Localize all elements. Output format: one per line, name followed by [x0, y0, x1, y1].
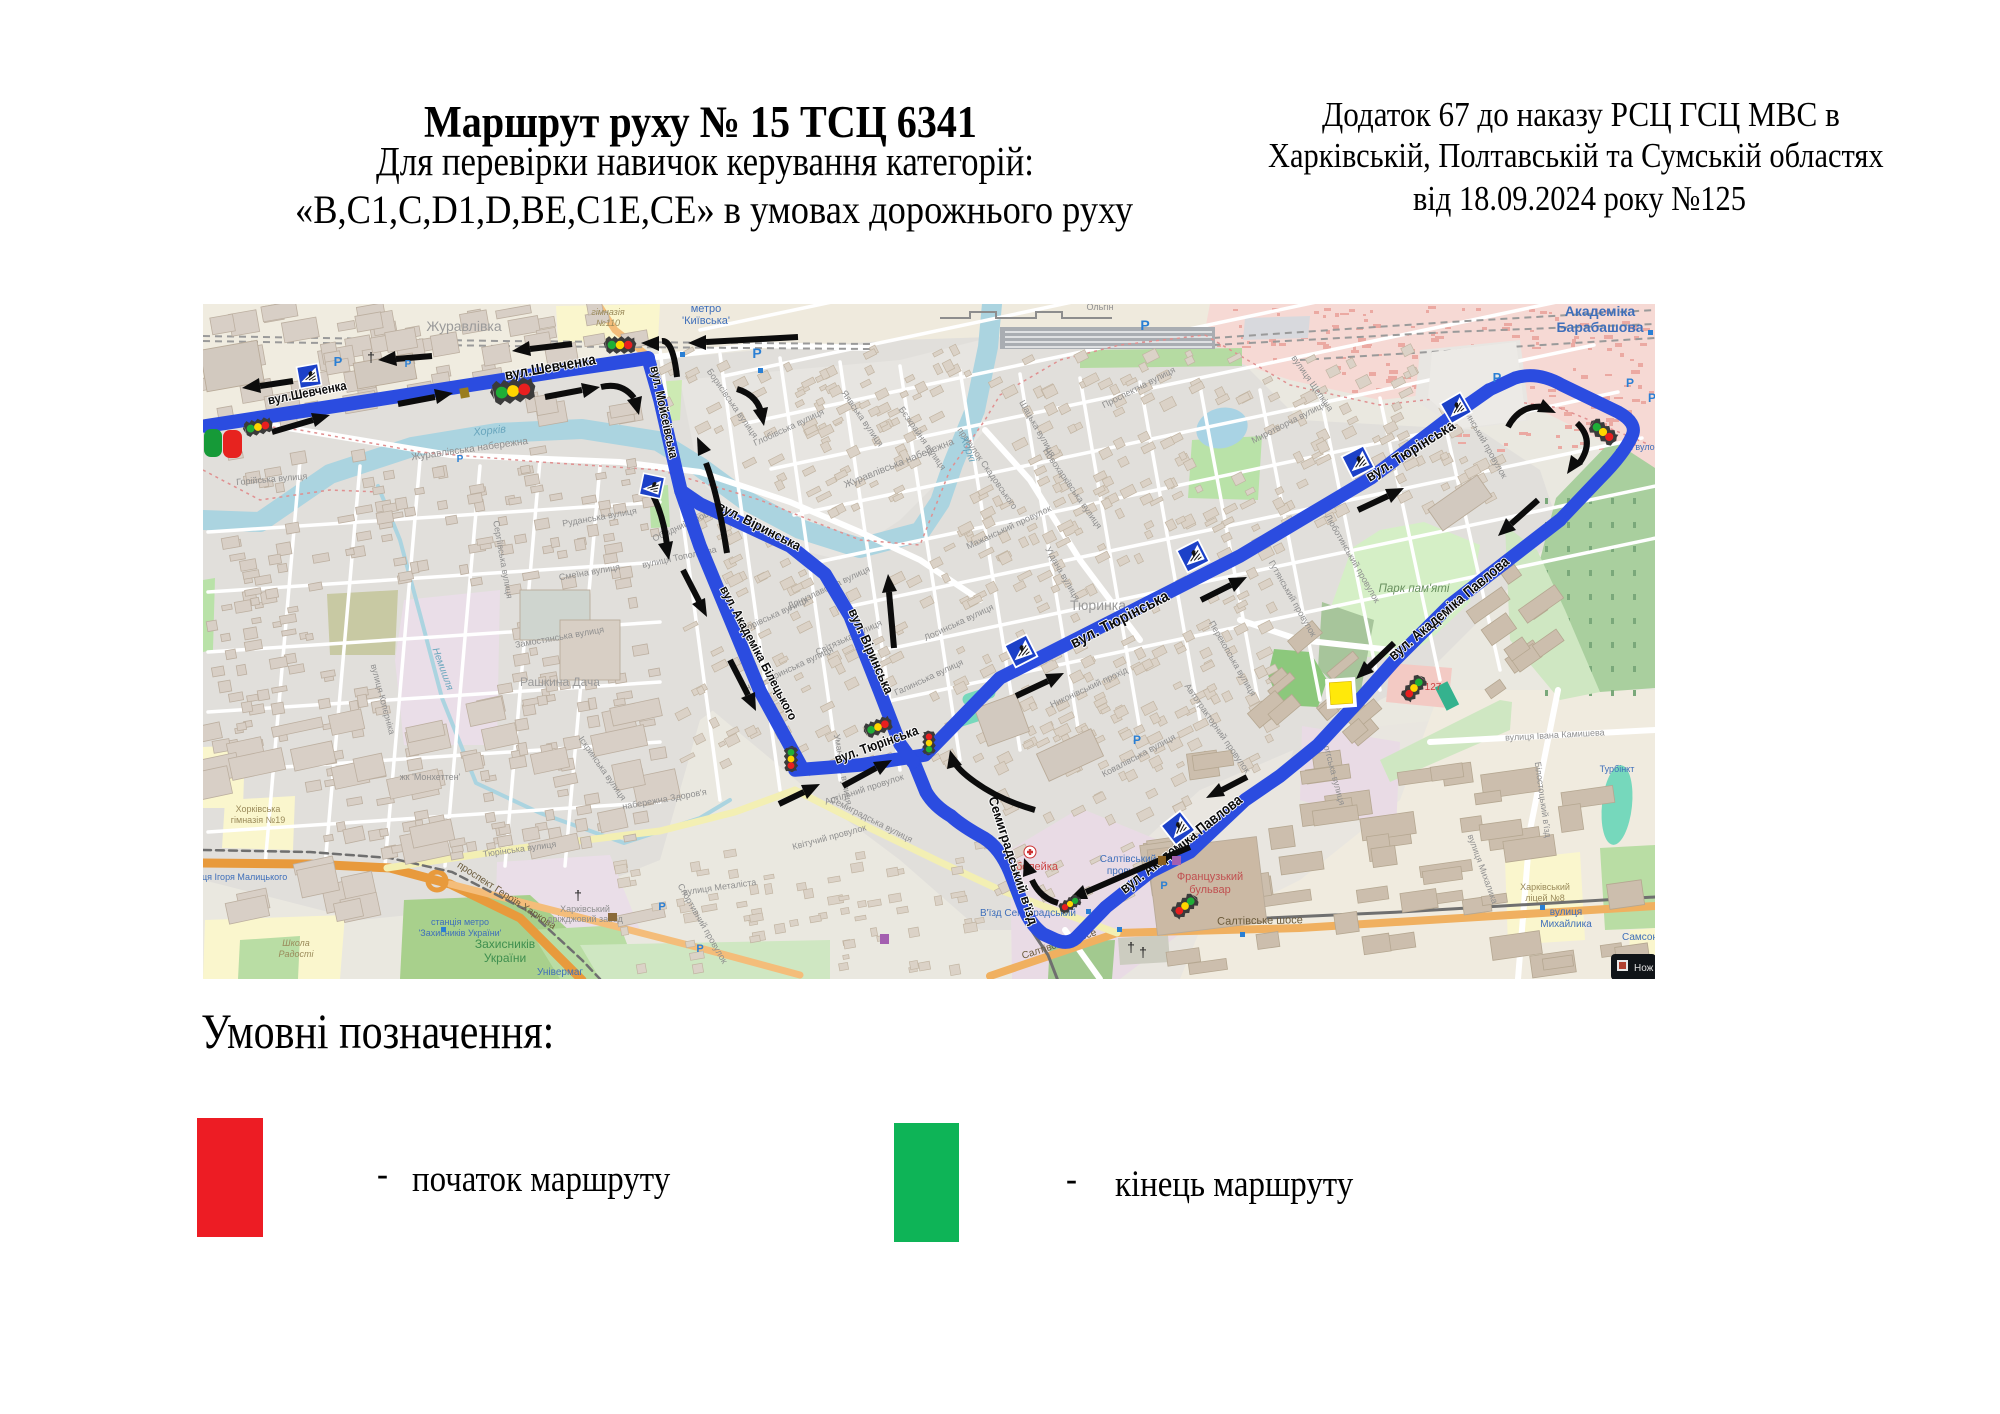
svg-text:Салтівське шосе: Салтівське шосе [1217, 914, 1303, 927]
svg-text:†: † [1139, 944, 1147, 960]
svg-text:гімназія: гімназія [591, 307, 625, 317]
svg-text:Самсон: Самсон [1622, 932, 1655, 943]
svg-text:Журавлівка: Журавлівка [426, 318, 501, 334]
svg-text:Нож: Нож [1634, 963, 1654, 974]
svg-text:Барабашова: Барабашова [1556, 319, 1643, 335]
svg-text:†: † [574, 887, 582, 903]
svg-text:Універмаг: Універмаг [537, 967, 583, 978]
svg-text:P: P [405, 359, 412, 370]
svg-text:вулиця: вулиця [1550, 907, 1582, 918]
svg-text:P: P [1493, 370, 1502, 385]
svg-text:P: P [752, 345, 761, 361]
svg-text:№110: №110 [596, 318, 620, 328]
svg-text:Хорківська: Хорківська [236, 804, 281, 814]
svg-text:Школа: Школа [282, 938, 309, 948]
svg-text:Харківський: Харківський [1520, 882, 1570, 892]
svg-text:P: P [334, 354, 343, 369]
svg-text:P: P [1648, 391, 1655, 405]
svg-text:жк 'Монхеттен': жк 'Монхеттен' [400, 772, 461, 782]
svg-text:ліцей №8: ліцей №8 [1525, 893, 1565, 903]
svg-text:'Київська': 'Київська' [682, 315, 730, 327]
svg-text:метро: метро [691, 304, 722, 315]
svg-text:Академіка: Академіка [1565, 304, 1636, 319]
svg-text:Рашкина Дача: Рашкина Дача [520, 675, 600, 689]
svg-text:Захисників: Захисників [475, 937, 535, 951]
svg-text:P: P [457, 454, 464, 465]
svg-text:станція метро: станція метро [431, 917, 489, 927]
svg-text:†: † [367, 349, 375, 365]
svg-text:Радості: Радості [279, 949, 315, 959]
svg-text:P: P [1133, 733, 1141, 747]
svg-text:P: P [1626, 376, 1634, 390]
svg-text:гімназія №19: гімназія №19 [231, 815, 286, 825]
svg-text:вулиця Ігоря Малицького: вулиця Ігоря Малицького [203, 872, 287, 882]
svg-text:бульвар: бульвар [1189, 884, 1230, 896]
svg-text:P: P [696, 943, 703, 955]
svg-text:Турбінкт: Турбінкт [1600, 764, 1635, 774]
svg-text:†: † [1127, 939, 1135, 955]
svg-text:Михайлика: Михайлика [1540, 919, 1592, 930]
svg-text:Французький: Французький [1177, 871, 1243, 883]
svg-text:України: України [484, 951, 526, 965]
svg-text:P: P [1160, 880, 1167, 892]
svg-text:P: P [1140, 317, 1149, 333]
svg-text:'Захисників України': 'Захисників України' [419, 928, 502, 938]
svg-text:127: 127 [1425, 682, 1442, 693]
svg-text:Харківський: Харківський [560, 904, 610, 914]
svg-text:Ольгін: Ольгін [1086, 304, 1113, 312]
svg-text:Парк пам'яті: Парк пам'яті [1379, 583, 1450, 595]
svg-text:P: P [658, 901, 665, 913]
